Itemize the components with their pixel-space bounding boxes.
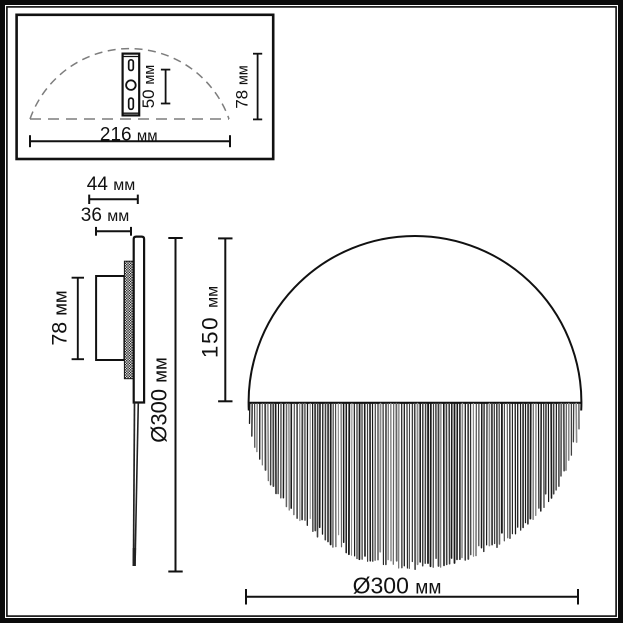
svg-text:78 мм: 78 мм [233,65,252,109]
svg-text:78 мм: 78 мм [48,290,72,345]
svg-text:50 мм: 50 мм [139,65,158,109]
svg-text:216 мм: 216 мм [100,124,158,145]
svg-text:Ø300 мм: Ø300 мм [147,357,172,442]
svg-text:44 мм: 44 мм [87,174,135,195]
svg-text:36 мм: 36 мм [81,205,129,226]
